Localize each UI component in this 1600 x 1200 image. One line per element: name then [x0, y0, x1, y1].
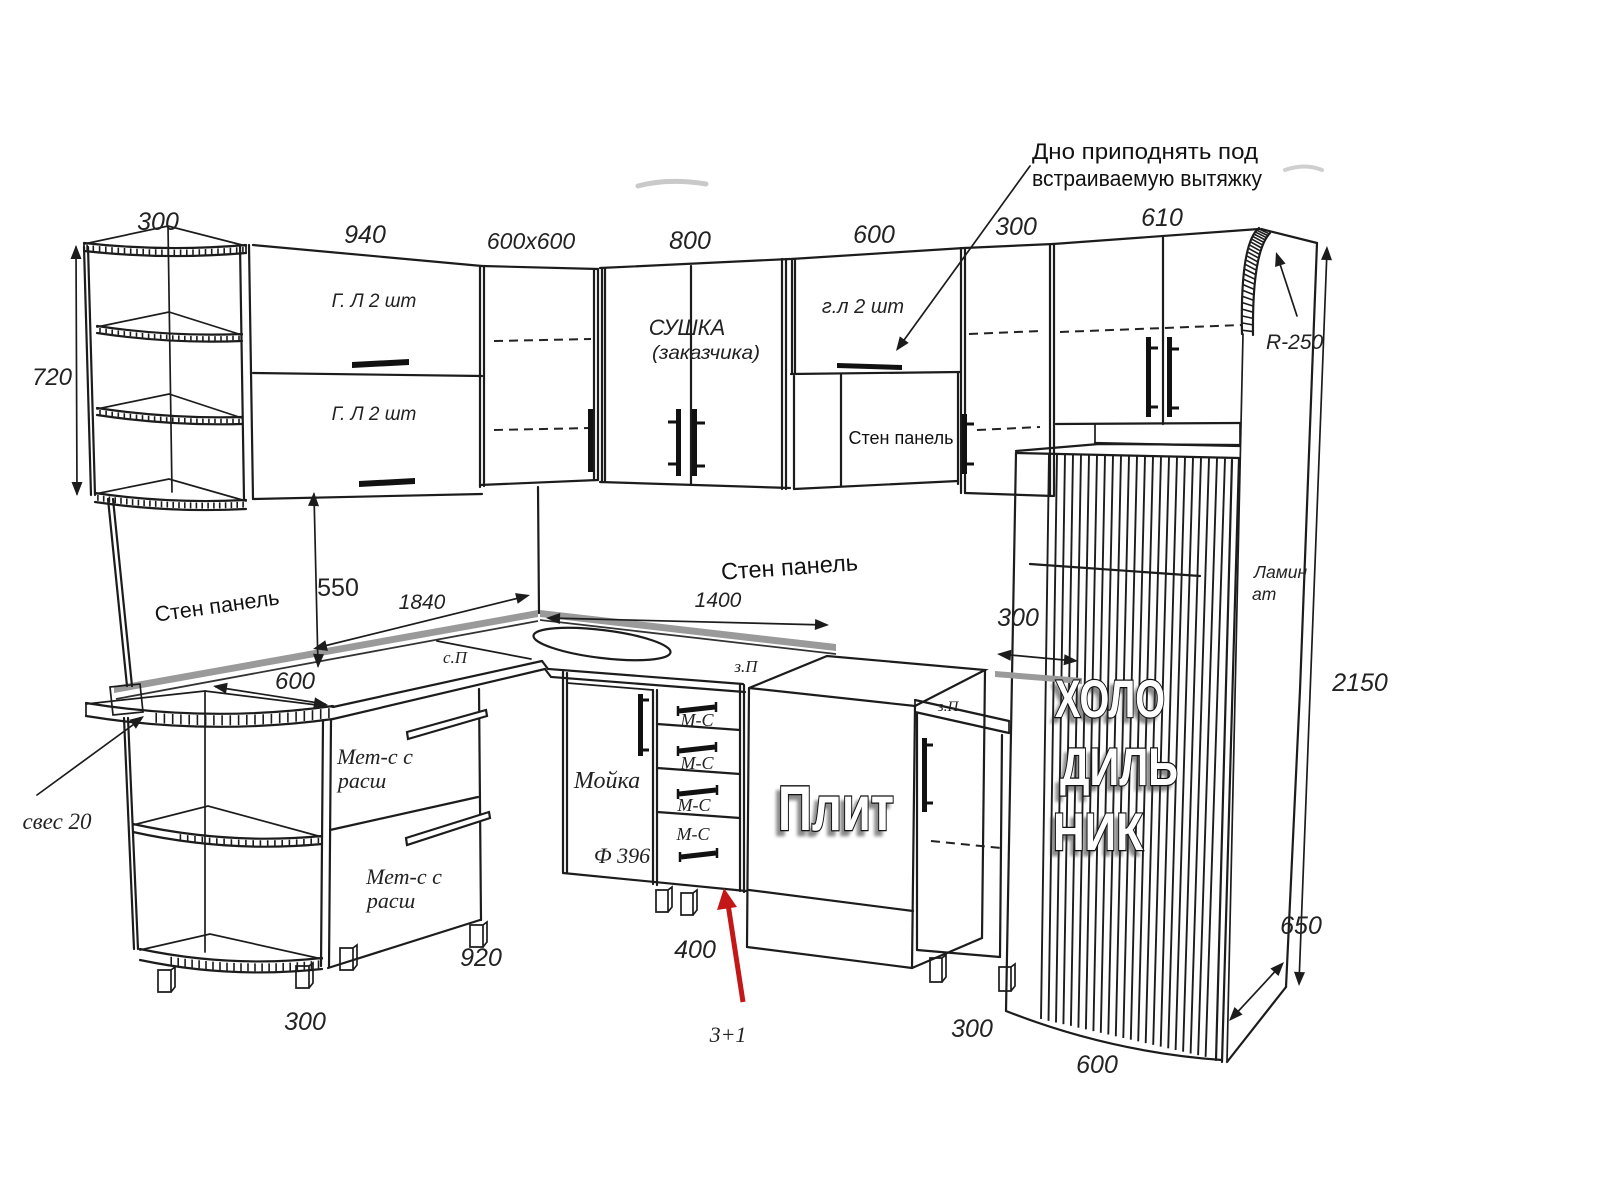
svg-text:Ф 396: Ф 396 [594, 843, 650, 868]
svg-text:з.П.: з.П. [937, 699, 962, 715]
svg-text:2150: 2150 [1331, 669, 1388, 697]
svg-text:Стен панель: Стен панель [849, 428, 954, 448]
svg-text:3+1: 3+1 [709, 1022, 747, 1047]
svg-text:Г. Л 2 шт: Г. Л 2 шт [332, 291, 417, 312]
svg-text:600: 600 [853, 221, 895, 249]
svg-text:Г. Л 2 шт: Г. Л 2 шт [332, 404, 417, 425]
svg-text:940: 940 [344, 221, 386, 249]
svg-text:550: 550 [317, 574, 359, 602]
svg-text:(заказчика): (заказчика) [652, 343, 760, 364]
svg-text:610: 610 [1141, 204, 1183, 232]
svg-text:800: 800 [669, 227, 711, 255]
svg-text:300: 300 [951, 1015, 993, 1043]
svg-text:Мет-с с: Мет-с с [336, 744, 413, 769]
svg-text:400: 400 [674, 936, 716, 964]
svg-text:расш: расш [365, 888, 415, 913]
svg-text:300: 300 [284, 1008, 326, 1036]
svg-text:600: 600 [1076, 1051, 1118, 1079]
svg-text:Плит: Плит [778, 774, 894, 844]
svg-text:720: 720 [32, 364, 73, 391]
svg-text:Мойка: Мойка [573, 768, 640, 794]
svg-text:М-С: М-С [680, 710, 715, 730]
svg-text:СУШКА: СУШКА [649, 315, 726, 340]
svg-text:свес 20: свес 20 [22, 809, 92, 834]
svg-text:300: 300 [995, 213, 1037, 241]
svg-text:920: 920 [460, 944, 502, 972]
svg-text:НИК: НИК [1053, 803, 1144, 862]
svg-text:1840: 1840 [399, 591, 446, 614]
svg-text:Дно приподнять под: Дно приподнять под [1032, 139, 1258, 164]
svg-text:расш: расш [336, 768, 386, 793]
svg-text:Мет-с с: Мет-с с [365, 864, 442, 889]
svg-text:650: 650 [1280, 912, 1322, 940]
svg-text:встраиваемую вытяжку: встраиваемую вытяжку [1032, 166, 1262, 191]
svg-text:ХОЛО: ХОЛО [1055, 670, 1165, 729]
svg-text:М-С: М-С [680, 753, 715, 773]
svg-text:ДИЛЬ: ДИЛЬ [1060, 738, 1178, 797]
svg-text:300: 300 [137, 208, 179, 236]
svg-text:г.л 2 шт: г.л 2 шт [822, 296, 904, 318]
svg-text:М-С: М-С [676, 824, 711, 844]
svg-text:600x600: 600x600 [487, 228, 575, 254]
svg-text:з.П: з.П [733, 657, 759, 676]
svg-text:300: 300 [997, 604, 1039, 632]
svg-text:1400: 1400 [695, 589, 742, 612]
svg-text:с.П: с.П [443, 648, 469, 667]
svg-text:Ламин: Ламин [1253, 562, 1307, 582]
svg-text:600: 600 [275, 668, 316, 695]
svg-text:М-С: М-С [677, 795, 712, 815]
svg-text:ат: ат [1252, 584, 1276, 604]
svg-text:R-250: R-250 [1266, 331, 1324, 354]
